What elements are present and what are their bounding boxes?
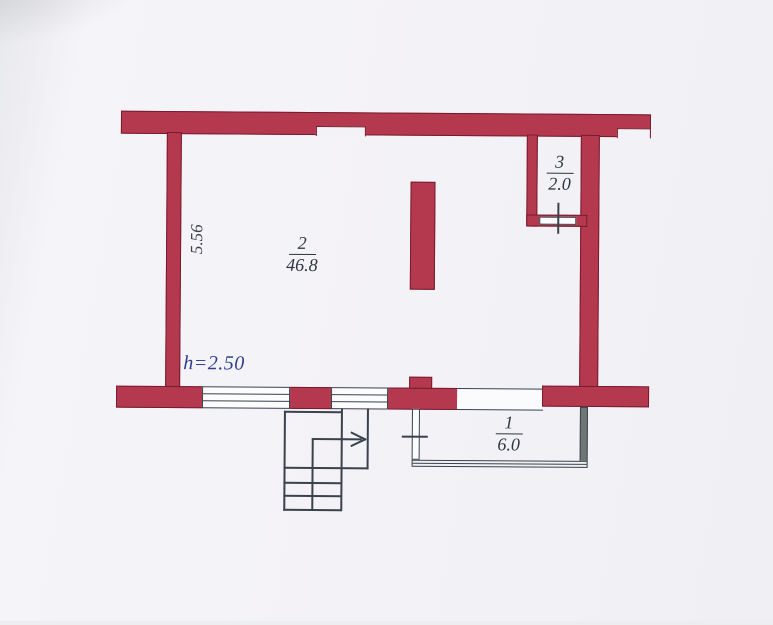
wall-bottom-segment-b [289, 387, 332, 409]
stairs-step-line [283, 495, 341, 497]
doorway-opening [457, 388, 543, 411]
left-wall-dimension: 5.56 [187, 207, 207, 271]
room1-number: 1 [495, 413, 522, 434]
porch-bottom-edge [412, 460, 588, 468]
window-1-mullion [203, 400, 289, 402]
room3-area: 2.0 [532, 173, 586, 193]
window-2-mullion [332, 401, 387, 402]
wall-bottom-segment-d [542, 386, 649, 408]
porch-left-window [412, 409, 420, 460]
wall-left [165, 132, 182, 387]
interior-pillar [410, 182, 436, 290]
porch-right-edge [580, 407, 588, 468]
porch-window-tick [402, 436, 428, 438]
room3-window-symbol-line [557, 203, 559, 234]
stairs-rail-line [311, 439, 314, 511]
window-2-mullion [332, 394, 387, 395]
ceiling-height-note: h=2.50 [183, 352, 245, 375]
room1-label: 1 6.0 [482, 413, 536, 454]
stairs-landing-edge [284, 467, 369, 470]
wall-bottom-segment-c [387, 388, 458, 410]
room3-number: 3 [546, 153, 573, 174]
wall-top-recess-left [316, 126, 366, 136]
floor-plan: 2 46.8 3 2.0 1 6.0 5.56 h=2.50 [0, 0, 773, 625]
room2-label: 2 46.8 [272, 234, 332, 275]
room2-number: 2 [289, 234, 316, 255]
stairs-right-stringer [367, 408, 369, 469]
window-2 [331, 387, 388, 409]
scanned-floor-plan-sheet: 2 46.8 3 2.0 1 6.0 5.56 h=2.50 [0, 0, 773, 621]
wall-top [121, 111, 651, 138]
window-1 [202, 386, 290, 409]
room2-area: 46.8 [272, 255, 332, 275]
stairs-direction-arrow-shaft [312, 438, 362, 440]
stairs-top-edge [284, 411, 342, 413]
wall-bottom-segment-a [116, 386, 203, 409]
window-1-mullion [203, 393, 289, 395]
wall-top-recess-right [617, 128, 651, 138]
stairs-bottom-edge [283, 509, 341, 511]
room3-label: 3 2.0 [532, 153, 586, 194]
stairs-step-line [283, 482, 341, 484]
room1-area: 6.0 [482, 434, 536, 454]
wall-bottom-stub [409, 377, 432, 389]
